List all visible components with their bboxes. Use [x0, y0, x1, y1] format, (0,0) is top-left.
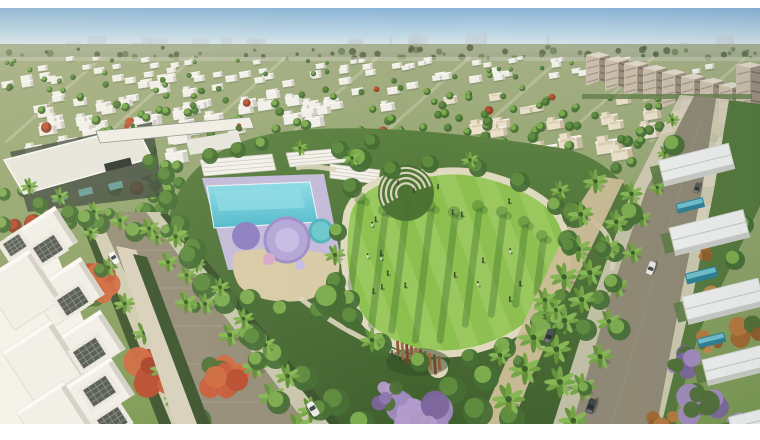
- aerial-render-photo: [0, 0, 760, 440]
- scene-svg: [0, 0, 760, 440]
- aerial-render-page: [0, 0, 760, 440]
- light-overlay: [0, 8, 760, 424]
